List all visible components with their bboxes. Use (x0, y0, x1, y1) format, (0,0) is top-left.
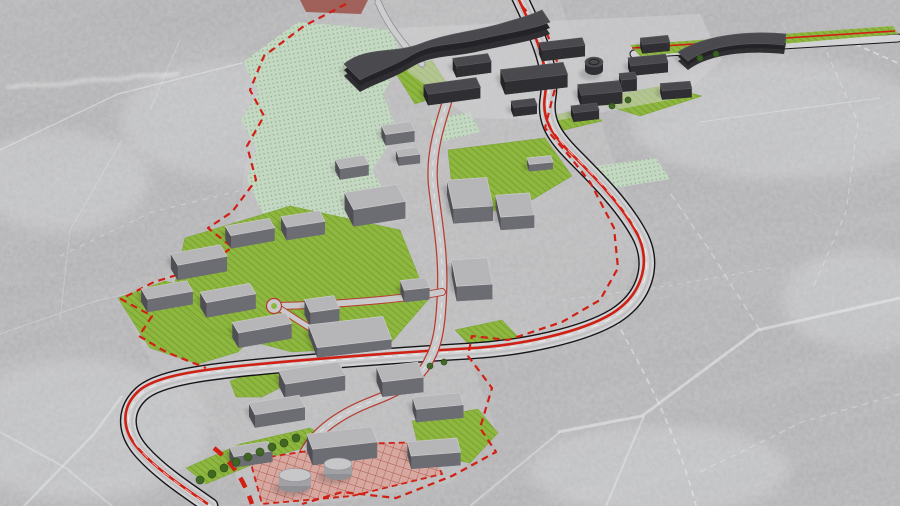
masterplan-render (0, 0, 900, 506)
texture-overlay (0, 0, 900, 506)
texture-grain (0, 0, 900, 506)
masterplan-viewport (0, 0, 900, 506)
